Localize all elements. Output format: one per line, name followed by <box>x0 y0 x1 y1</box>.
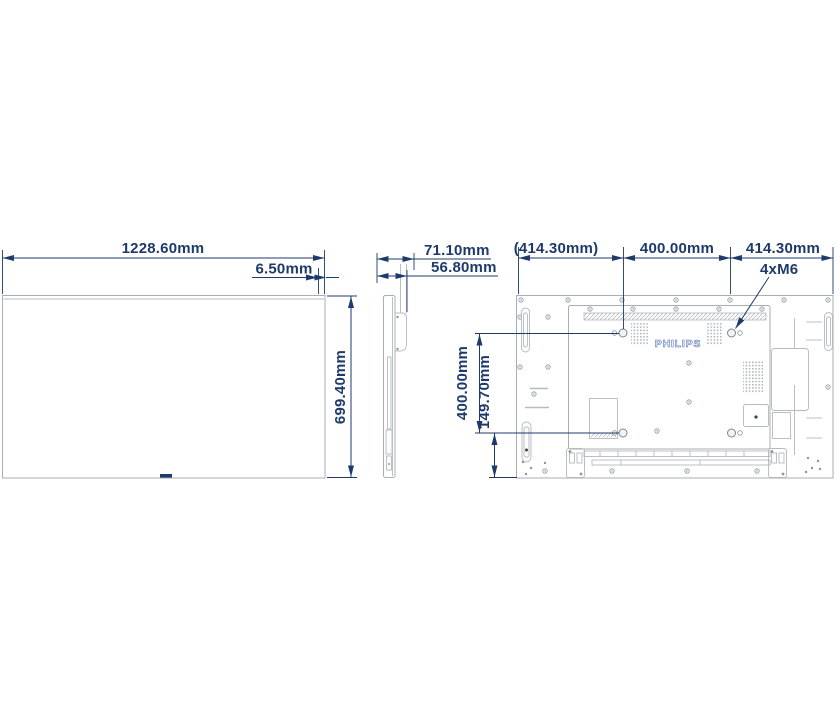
side-depth-body-label: 56.80mm <box>431 259 497 276</box>
rear-bottom-offset-label: 149.70mm <box>476 355 493 429</box>
technical-drawing: 1228.60mm 6.50mm 699.40mm <box>0 0 840 720</box>
front-height-dimension: 699.40mm <box>327 296 357 478</box>
front-panel <box>3 296 326 479</box>
rear-vesa-width-label: 400.00mm <box>640 240 714 257</box>
rear-mount-rail <box>584 313 766 320</box>
front-height-label: 699.40mm <box>332 350 349 424</box>
rear-mount-screws-label: 4xM6 <box>760 261 798 278</box>
rear-left-offset-label: (414.30mm) <box>514 240 599 257</box>
front-bezel-label: 6.50mm <box>255 261 312 278</box>
rear-view: PHILIPS <box>454 240 833 478</box>
front-bezel-dimension: 6.50mm <box>252 261 339 295</box>
rear-vesa-height-label: 400.00mm <box>454 346 471 420</box>
front-width-label: 1228.60mm <box>122 240 205 257</box>
rear-right-offset-label: 414.30mm <box>746 240 820 257</box>
side-mount-hook <box>395 313 407 351</box>
front-view: 1228.60mm 6.50mm 699.40mm <box>3 240 358 478</box>
side-depth-total-label: 71.10mm <box>424 242 490 259</box>
philips-logo: PHILIPS <box>655 338 701 350</box>
front-logo-mark <box>160 474 172 478</box>
